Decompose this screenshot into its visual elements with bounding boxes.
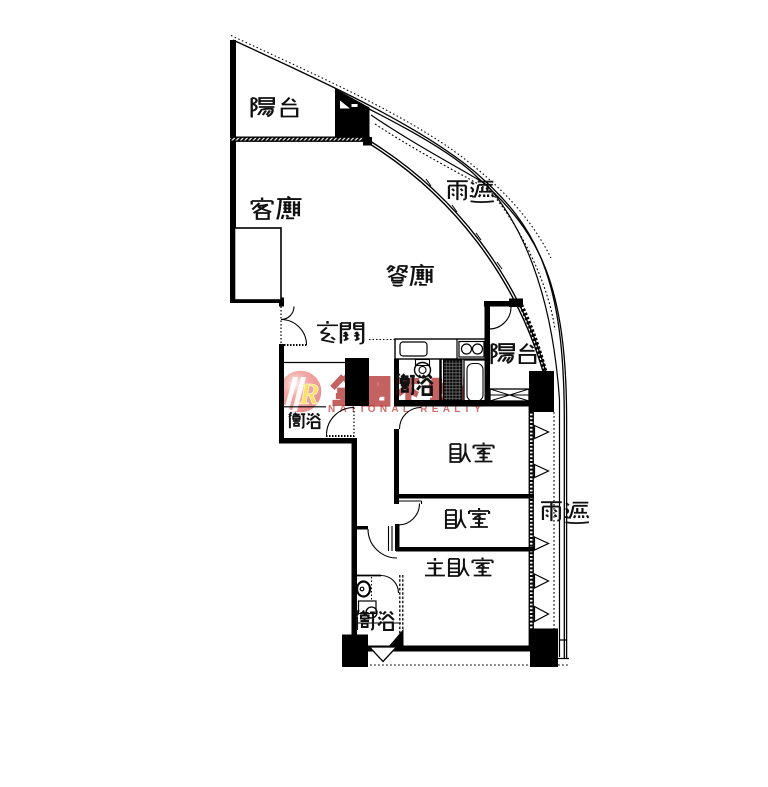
svg-text:R: R [298,376,320,411]
